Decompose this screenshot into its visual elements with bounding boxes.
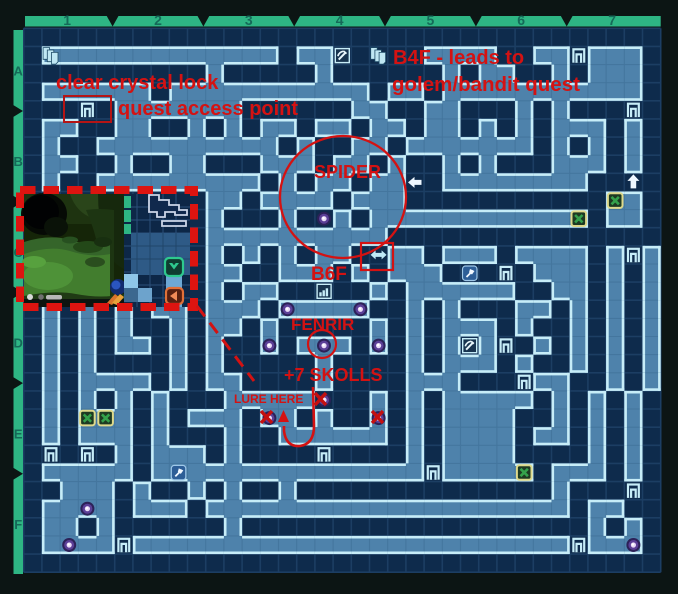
svg-text:FENRIR: FENRIR xyxy=(291,315,354,334)
svg-text:3: 3 xyxy=(245,12,253,28)
svg-text:quest access point: quest access point xyxy=(118,98,298,120)
svg-text:1: 1 xyxy=(63,12,71,28)
svg-text:LURE HERE: LURE HERE xyxy=(234,392,303,406)
svg-text:A: A xyxy=(14,64,24,79)
svg-text:7: 7 xyxy=(608,12,616,28)
svg-text:golem/bandit quest: golem/bandit quest xyxy=(392,73,580,96)
svg-text:B6F: B6F xyxy=(311,264,347,285)
svg-text:D: D xyxy=(14,336,23,351)
svg-text:clear crystal lock: clear crystal lock xyxy=(56,72,219,94)
svg-text:SPIDER: SPIDER xyxy=(314,162,381,182)
svg-text:E: E xyxy=(14,426,23,441)
svg-text:2: 2 xyxy=(154,12,162,28)
svg-text:F: F xyxy=(14,517,22,532)
svg-text:B4F - leads to: B4F - leads to xyxy=(393,47,524,69)
svg-text:4: 4 xyxy=(336,12,344,28)
svg-text:6: 6 xyxy=(517,12,525,28)
svg-text:B: B xyxy=(14,154,23,169)
svg-text:+7 SKOLLS: +7 SKOLLS xyxy=(284,365,383,385)
svg-text:5: 5 xyxy=(427,12,435,28)
